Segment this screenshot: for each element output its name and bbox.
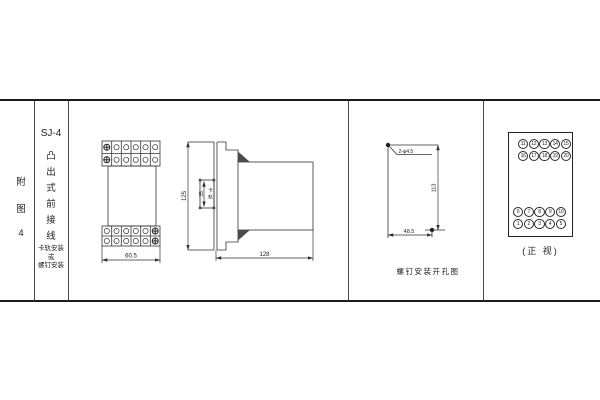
terminal-circle: 12: [529, 139, 539, 149]
mounting-note-line: 螺钉安装: [34, 262, 68, 271]
side-outline: [200, 142, 313, 250]
divider-model-col: [68, 101, 69, 301]
model-label: SJ-4: [34, 128, 68, 139]
terminal-circle: 1: [513, 219, 523, 229]
terminal-circle: 14: [550, 139, 560, 149]
side-depth-dim-label: 128: [259, 252, 270, 258]
front-outline: [102, 141, 160, 246]
terminal-circle: 5: [556, 219, 566, 229]
terminal-circle: 9: [545, 207, 555, 217]
terminal-circle: 8: [534, 207, 544, 217]
figure-number-cell: 附 图 4: [8, 174, 34, 239]
model-description: 凸 出 式 前 接 线: [34, 148, 68, 242]
divider-drill-col: [348, 101, 349, 301]
rail-width-dim-label: 35: [199, 191, 205, 197]
side-height-dim-label: 125: [182, 190, 188, 201]
front-width-dim-label: 60.5: [125, 254, 137, 260]
terminal-row-upper-1: 11 12 13 14 15: [518, 139, 571, 149]
terminal-caption: (正 视): [503, 244, 578, 257]
drill-height-dim-label: 113: [432, 184, 438, 193]
mounting-note-line: 卡轨安装: [34, 245, 68, 254]
terminal-circle: 15: [561, 139, 571, 149]
model-desc-char: 出: [46, 164, 56, 178]
drill-width-dim-label: 48.5: [404, 229, 415, 235]
drill-caption: 螺钉安装开孔图: [373, 266, 483, 277]
holes-count-label: 2-φ4.5: [399, 149, 414, 155]
terminal-row-lower-2: 1 2 3 4 5: [513, 219, 566, 229]
terminal-circle: 19: [550, 151, 560, 161]
model-desc-char: 式: [46, 180, 56, 194]
terminal-circle: 11: [518, 139, 528, 149]
model-desc-char: 接: [46, 212, 56, 226]
terminal-circle: 2: [524, 219, 534, 229]
gusset-and-clips: [199, 152, 250, 241]
figure-char: 图: [16, 201, 26, 215]
drawing-sheet: 附 图 4 SJ-4 凸 出 式 前 接 线 卡轨安装 或 螺钉安装: [0, 0, 600, 400]
mounting-note: 卡轨安装 或 螺钉安装: [34, 245, 68, 271]
terminal-circle: 10: [556, 207, 566, 217]
terminal-circle: 6: [513, 207, 523, 217]
terminal-circle: 3: [534, 219, 544, 229]
terminal-circle: 4: [545, 219, 555, 229]
terminal-circle: 13: [539, 139, 549, 149]
terminal-circle: 16: [518, 151, 528, 161]
terminal-layout-panel: 11 12 13 14 15 16 17 18 19 20 6 7 8 9 10…: [508, 132, 573, 237]
terminal-circle: 7: [524, 207, 534, 217]
sheet-bottom-border: [0, 300, 600, 302]
terminal-circle: 17: [529, 151, 539, 161]
sheet-top-border: [0, 99, 600, 101]
model-desc-char: 线: [46, 228, 56, 242]
figure-char: 4: [18, 228, 23, 239]
drill-hole-diagram: 2-φ4.5 113 48.5: [375, 138, 480, 248]
side-view-drawing: 125 35 卡 轨 128: [180, 135, 330, 265]
divider-terminal-col: [483, 101, 484, 301]
rail-label-char: 卡: [208, 187, 213, 194]
terminal-row-upper-2: 16 17 18 19 20: [518, 151, 571, 161]
rail-label-char: 轨: [208, 194, 213, 201]
figure-char: 附: [16, 174, 26, 188]
model-desc-char: 前: [46, 196, 56, 210]
model-desc-char: 凸: [46, 148, 56, 162]
mounting-note-line: 或: [34, 254, 68, 263]
side-dimensions: [188, 142, 313, 261]
drill-holes: [386, 143, 434, 232]
terminal-circle: 20: [561, 151, 571, 161]
terminal-row-lower-1: 6 7 8 9 10: [513, 207, 566, 217]
terminal-circle: 18: [539, 151, 549, 161]
drill-dimensions: [388, 145, 438, 235]
